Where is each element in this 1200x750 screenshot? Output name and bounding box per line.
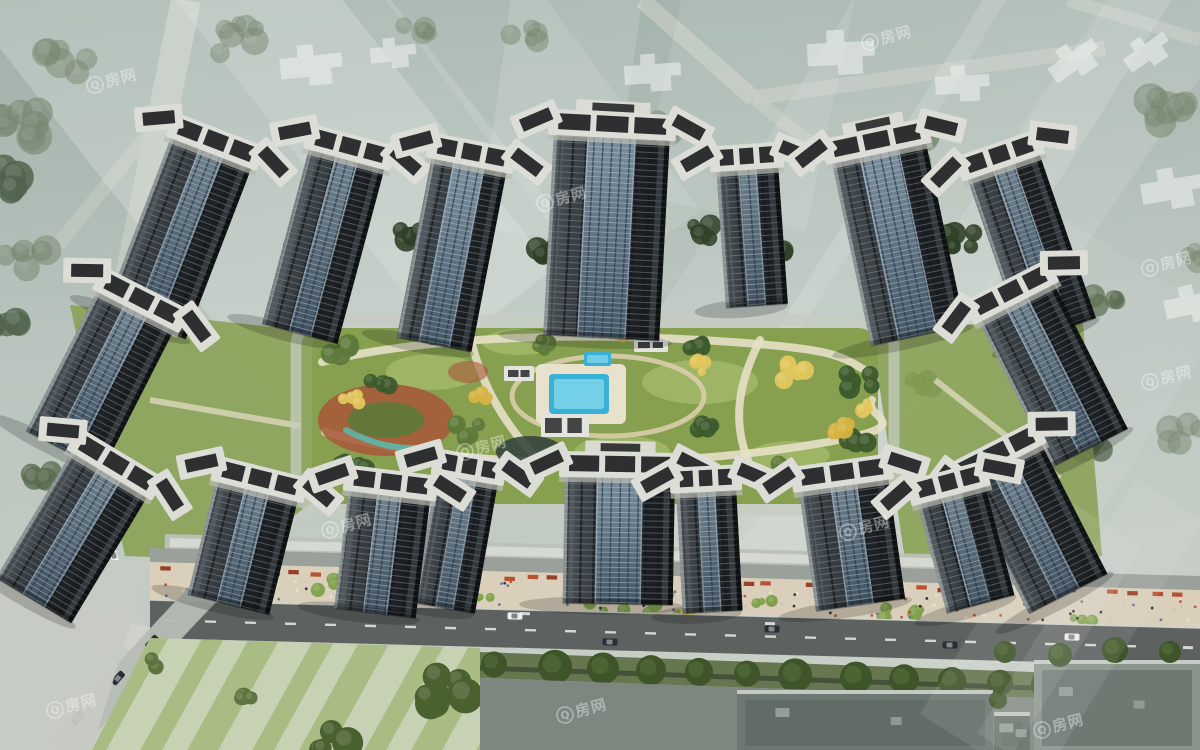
pedestrian-dot [296,589,299,592]
shop-awning [744,582,755,586]
pedestrian-dot [305,587,308,590]
pedestrian-dot [900,616,903,619]
street-tree [636,655,666,685]
pedestrian-dot [1194,605,1197,608]
tower-roof-frame [38,416,88,445]
pedestrian-dot [925,597,928,600]
lane-dash [525,629,536,632]
pedestrian-dot [793,593,796,596]
roof-slot [605,456,635,473]
street-tree [685,658,713,686]
pedestrian-dot [1180,605,1183,608]
shop-awning [160,566,171,570]
pedestrian-dot [1151,607,1154,610]
car [507,612,522,619]
pedestrian-dot [1186,618,1189,621]
glass-grid [595,474,643,605]
shop-awning [760,581,771,585]
lane-dash [485,628,496,631]
pedestrian-dot [500,582,503,585]
street-tree [538,650,572,684]
shop-awning [547,575,558,579]
pedestrian-dot [509,580,512,583]
street-tree [840,662,872,694]
shop-awning [1172,592,1183,596]
pool-water [554,379,604,409]
pedestrian-dot [295,580,298,583]
pedestrian-dot [909,616,912,619]
car [602,638,617,645]
pedestrian-dot [876,612,879,615]
aerial-rendering-screenshot: Q房网Q房网Q房网Q房网Q房网Q房网Q房网Q房网Q房网Q房网Q房网 [0,0,1200,750]
roof-slot [634,117,667,135]
roof-slot [829,463,854,482]
pedestrian-dot [506,584,509,587]
lane-dash [925,639,936,642]
car [942,641,957,648]
shop-awning [288,570,299,574]
pedestrian-dot [928,600,931,603]
pedestrian-dot [675,598,678,601]
tower-roof-frame [134,103,184,132]
pedestrian-dot [919,605,922,608]
lane-dash [285,622,296,625]
garden-pavilion [541,414,589,437]
pedestrian-dot [933,604,936,607]
southeast-tree [1159,641,1181,663]
lane-dash [845,637,856,640]
lane-dash [725,634,736,637]
street-tree [587,652,619,684]
roof-slot [569,455,599,472]
lane-dash [565,630,576,633]
rendering: Q房网Q房网Q房网Q房网Q房网Q房网Q房网Q房网Q房网Q房网Q房网 [0,0,1200,750]
pedestrian-dot [516,582,519,585]
street-tree [889,664,919,694]
pedestrian-dot [1179,600,1182,603]
lane-dash [365,625,376,628]
kids-pool-water [587,355,608,363]
shop-awning [528,575,539,579]
tower-roof-frame [63,258,111,284]
pedestrian-dot [780,602,783,605]
street-tree [481,652,507,678]
lane-dash [245,621,256,624]
lane-dash [685,633,696,636]
roof-slot [558,113,591,131]
red-patch [448,361,488,383]
lane-dash [325,623,336,626]
lane-dash [885,638,896,641]
lane-dash [805,636,816,639]
road-marking [765,622,775,625]
shop-awning [504,577,515,581]
pedestrian-dot [1173,608,1176,611]
street-tree [778,658,812,692]
pedestrian-dot [503,582,506,585]
pedestrian-dot [277,598,280,601]
pedestrian-dot [743,595,746,598]
street-tree [734,661,760,687]
roof-slot [380,473,402,491]
pedestrian-dot [744,605,747,608]
pedestrian-dot [870,614,873,617]
roof-slot [699,470,713,487]
crown-slot [601,443,641,452]
car [764,625,779,632]
pedestrian-dot [908,611,911,614]
shop-awning [916,585,927,589]
pedestrian-dot [935,594,938,597]
lane-dash [445,627,456,630]
roof-slot [596,115,629,133]
pedestrian-dot [1160,618,1163,621]
lane-dash [605,631,616,634]
lane-dash [405,626,416,629]
road-marking [1183,646,1193,649]
pedestrian-dot [769,591,772,594]
lane-dash [645,632,656,635]
shop-awning [310,572,321,576]
tower-roof-frame [1027,411,1075,437]
pedestrian-dot [498,603,501,606]
tower-roof-frame [1040,250,1088,276]
pedestrian-dot [674,590,677,593]
roof-slot [858,458,883,477]
lane-dash [765,635,776,638]
pedestrian-dot [329,595,332,598]
lane-dash [205,620,216,623]
garden-pavilion [504,366,534,381]
pedestrian-dot [796,591,799,594]
roof-slot [739,148,754,165]
pedestrian-dot [793,605,796,608]
